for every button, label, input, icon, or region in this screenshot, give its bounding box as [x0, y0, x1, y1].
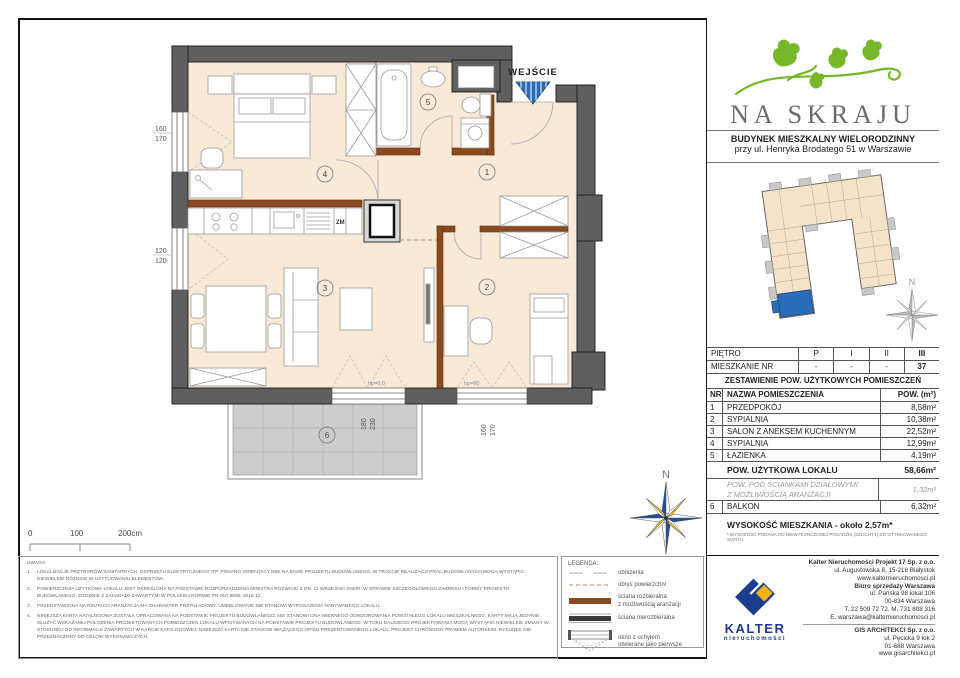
- room-3-number: 3: [323, 284, 328, 293]
- dishwasher-label: ZM: [336, 220, 345, 226]
- area-row: 3 SALON Z ANEKSEM KUCHENNYM 22,52m²: [707, 426, 939, 438]
- svg-text:170: 170: [155, 136, 167, 143]
- note-item: 1.LOKALIZACJE PRZYBORÓW SANITARNYCH, OSP…: [27, 570, 549, 584]
- project-logo: NA SKRAJU: [707, 18, 939, 130]
- area-row: 2 SYPIALNIA 10,38m²: [707, 414, 939, 426]
- balcony: [228, 401, 422, 479]
- area-table-title: ZESTAWIENIE POW. UŻYTKOWYCH POMIESZCZEŃ: [707, 374, 939, 389]
- balcony-area-value: 6,32m²: [881, 501, 939, 513]
- area-row: 5 ŁAZIENKA 4,19m²: [707, 450, 939, 462]
- kalter-wordmark: KALTER: [725, 622, 786, 635]
- apartment-height-note: WYSOKOŚĆ MIESZKANIA - około 2,57m* * WYS…: [707, 514, 939, 542]
- usable-area-value: 58,66m²: [878, 465, 939, 475]
- area-row: 1 PRZEDPOKÓJ 8,58m²: [707, 402, 939, 414]
- apartment-number-label: MIESZKANIE NR: [707, 361, 799, 373]
- scale-0: 0: [28, 529, 33, 538]
- floor-table: PIĘTRO P I II III MIESZKANIE NR - - - 37: [707, 347, 939, 374]
- floor-plan-drawing: ZM hp=0,0 hp=60 1 2 3 4 5 6 160 170 120 …: [140, 28, 710, 568]
- legend-item-removable-wall: ściana rozbieralna z możliwością aranżac…: [568, 594, 697, 609]
- building-locator-map: N: [707, 163, 939, 347]
- scale-200: 200cm: [118, 529, 142, 538]
- floor-row: PIĘTRO P I II III: [707, 348, 939, 361]
- entrance-label: WEJŚCIE: [508, 66, 558, 78]
- installation-shaft: [364, 200, 400, 242]
- room-4-number: 4: [323, 170, 328, 179]
- room-1-number: 1: [485, 168, 490, 177]
- scale-bar: 0 100 200cm: [22, 524, 152, 556]
- area-table: NR NAZWA POMIESZCZENIA POW. (m²) 1 PRZED…: [707, 389, 939, 462]
- floor-plan: ZM hp=0,0 hp=60 1 2 3 4 5 6 160 170 120 …: [140, 28, 710, 568]
- legend-item-lowered: obniżenia: [568, 570, 697, 578]
- developer-address: Kalter Nieruchomości Projekt 17 Sp. z o.…: [803, 559, 935, 583]
- note-item: 3.PRZEDSTAWIONA NA RZUTACH ARANŻACJA MA …: [27, 604, 549, 611]
- kalter-logo-mark: [732, 574, 778, 620]
- legend: LEGENDA: obniżenia obrys powierzchni ści…: [561, 556, 704, 648]
- notes-title: UWAGA:: [27, 561, 549, 568]
- svg-text:N: N: [909, 277, 916, 287]
- floor-label: PIĘTRO: [707, 348, 799, 360]
- svg-text:160: 160: [481, 424, 488, 436]
- project-name: NA SKRAJU: [730, 102, 916, 128]
- building-type: BUDYNEK MIESZKALNY WIELORODZINNY: [709, 134, 937, 144]
- architect-address: GIS ARCHITEKCI Sp. z o.o. ul. Pęcicka 9 …: [803, 627, 935, 658]
- svg-text:170: 170: [490, 424, 497, 436]
- building-footprint: [754, 167, 905, 319]
- note-item: 4.NINIEJSZA KARTA KATALOGOWA ZOSTAŁA OPR…: [27, 614, 549, 642]
- apartment-number-row: MIESZKANIE NR - - - 37: [707, 361, 939, 374]
- svg-text:230: 230: [370, 418, 377, 430]
- hp-window-label: hp=60: [464, 381, 479, 387]
- map-compass: N: [886, 277, 938, 341]
- catalog-card-page: { "header": { "logo_title": "NA SKRAJU",…: [0, 0, 960, 678]
- ivy-logo-graphic: [728, 36, 918, 102]
- svg-text:120: 120: [155, 258, 167, 265]
- hp-door-label: hp=0,0: [368, 381, 385, 387]
- room-5-number: 5: [426, 98, 431, 107]
- companies-footer: KALTER nieruchomości Kalter Nieruchomośc…: [707, 555, 939, 659]
- highlighted-unit: [778, 290, 814, 317]
- building-subtitle: BUDYNEK MIESZKALNY WIELORODZINNY przy ul…: [707, 130, 939, 163]
- sales-email-link[interactable]: E. warszawa@kalternieruchomosci.pl: [803, 614, 935, 622]
- apartment-number-value: 37: [905, 361, 939, 373]
- kalter-logo: KALTER nieruchomości: [707, 556, 803, 659]
- area-row: 4 SYPIALNIA 12,99m²: [707, 438, 939, 450]
- sales-office-address: Biuro sprzedaży Warszawa ul. Pańska 98 l…: [803, 583, 935, 622]
- area-table-header: NR NAZWA POMIESZCZENIA POW. (m²): [707, 389, 939, 402]
- legend-item-structural-wall: ściana nierozbieralna: [568, 613, 697, 625]
- developer-website-link[interactable]: www.kalternieruchomosci.pl: [803, 575, 935, 583]
- compass-n-label: N: [662, 469, 670, 481]
- balcony-row: 6 BALKON 6,32m²: [707, 501, 939, 514]
- usable-area-total-row: POW. UŻYTKOWA LOKALU 58,66m²: [707, 462, 939, 479]
- info-panel: NA SKRAJU BUDYNEK MIESZKALNY WIELORODZIN…: [706, 18, 939, 659]
- svg-text:160: 160: [155, 126, 167, 133]
- svg-text:120: 120: [155, 248, 167, 255]
- entrance-marker: WEJŚCIE: [508, 66, 558, 106]
- legend-item-tilt-window: okno z uchyłem otwierane jako pierwsze: [568, 629, 697, 655]
- compass-rose: N: [630, 469, 702, 554]
- room-2-number: 2: [485, 283, 490, 292]
- bathroom-niche: [458, 66, 494, 88]
- footer-divider: [803, 624, 935, 625]
- architect-website-link[interactable]: www.gisarchitekci.pl: [803, 650, 935, 658]
- legend-title: LEGENDA:: [568, 561, 697, 567]
- disclaimer-notes: UWAGA: 1.LOKALIZACJE PRZYBORÓW SANITARNY…: [18, 556, 558, 659]
- note-item: 2.POWIERZCHNIA UŻYTKOWA LOKALU JEST OKRE…: [27, 587, 549, 601]
- svg-text:180: 180: [361, 418, 368, 430]
- legend-item-outline: obrys powierzchni: [568, 582, 697, 590]
- room-6-number: 6: [325, 431, 330, 440]
- partition-area-row: POW. POD ŚCIANKAMI DZIAŁOWYMI Z MOŻLIWOŚ…: [707, 479, 939, 501]
- building-address: przy ul. Henryka Brodatego 51 w Warszawi…: [709, 144, 937, 154]
- scale-100: 100: [70, 529, 84, 538]
